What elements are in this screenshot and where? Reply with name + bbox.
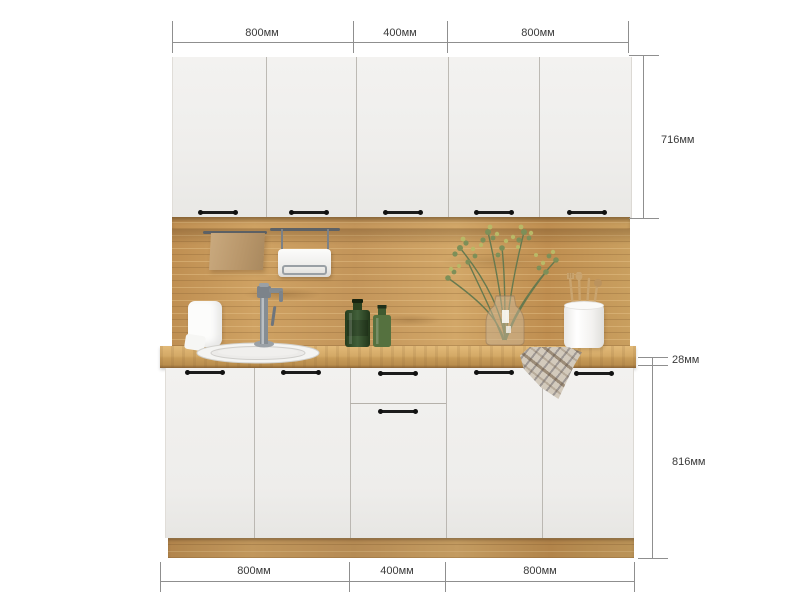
dim-tick [638,357,668,358]
base-door-handle [476,371,512,374]
upper-door-handle [569,211,605,214]
upper-door-handle [385,211,421,214]
dim-tick [353,21,354,53]
upper-door-divider [539,57,540,217]
dim-label-top-right: 800мм [521,27,554,40]
base-door-divider [350,368,351,538]
dim-line [652,357,653,558]
drawer-divider [350,403,446,404]
dim-tick [629,218,659,219]
utensil-cup [564,304,604,348]
dim-tick [628,21,629,53]
upper-door-handle [291,211,327,214]
green-glass-bottles [340,298,394,350]
dim-tick [638,558,668,559]
dim-tick [445,562,446,592]
upper-door-divider [356,57,357,217]
upper-cabinets [172,57,632,218]
base-door-handle [283,371,319,374]
dim-line [160,581,635,582]
base-door-handle [187,371,223,374]
upper-door-handle [476,211,512,214]
upper-door-handle [200,211,236,214]
dim-label-upper-height: 716мм [661,134,694,147]
plinth [168,538,634,558]
upper-door-divider [448,57,449,217]
dim-tick [447,21,448,53]
dispenser-box [278,249,331,277]
dim-label-bottom-left: 800мм [237,565,270,578]
base-door-divider [254,368,255,538]
base-cabinets [165,368,634,538]
dim-label-bottom-middle: 400мм [380,565,413,578]
dim-label-bottom-right: 800мм [523,565,556,578]
base-door-divider [542,368,543,538]
dim-label-top-middle: 400мм [383,27,416,40]
dim-line [172,42,628,43]
dim-tick [634,562,635,592]
dim-line [643,55,644,218]
dim-label-countertop: 28мм [672,354,699,367]
dim-label-top-left: 800мм [245,27,278,40]
glass-vase-with-greenery [432,222,562,348]
drawer-handle [380,372,416,375]
base-door-handle [380,410,416,413]
base-door-handle [576,372,612,375]
kraft-towel [209,233,265,270]
dim-tick [629,55,659,56]
faucet [248,278,296,350]
dim-tick [638,365,668,366]
dim-tick [172,21,173,53]
base-door-divider [446,368,447,538]
kitchen-dimension-diagram: 800мм 400мм 800мм 716мм 28мм 816мм 800мм… [0,0,800,600]
upper-door-divider [266,57,267,217]
dim-tick [349,562,350,592]
dim-tick [160,562,161,592]
dim-label-base-height: 816мм [672,456,705,469]
